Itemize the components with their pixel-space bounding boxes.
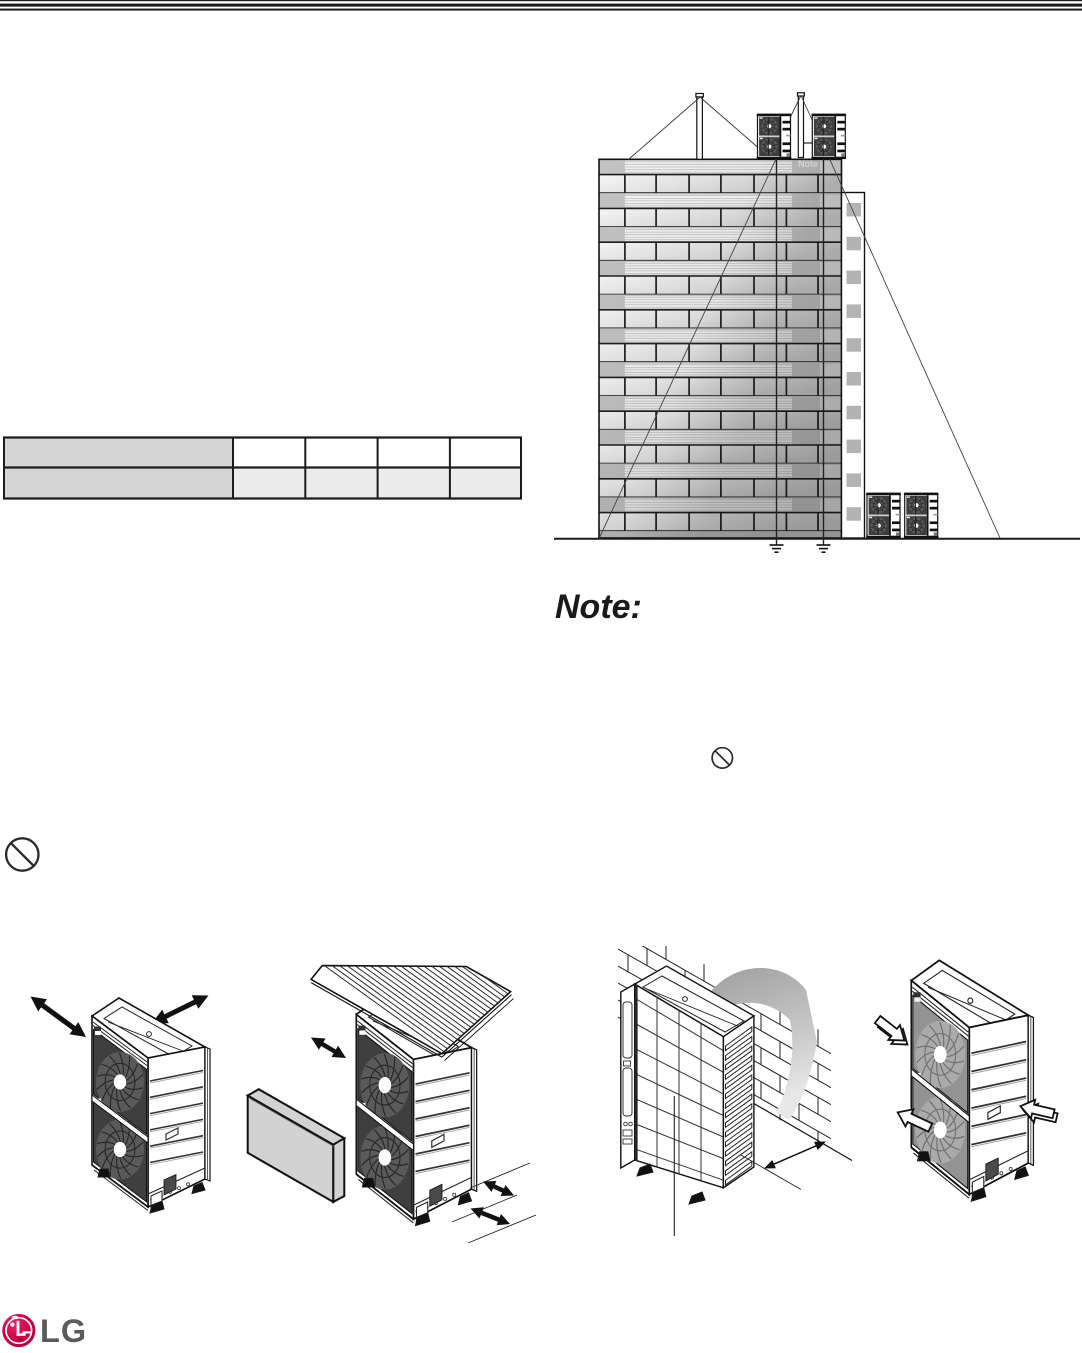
- svg-text:Note: Note: [798, 159, 818, 169]
- svg-text:LG: LG: [40, 1313, 87, 1349]
- svg-text:Note:: Note:: [555, 588, 642, 626]
